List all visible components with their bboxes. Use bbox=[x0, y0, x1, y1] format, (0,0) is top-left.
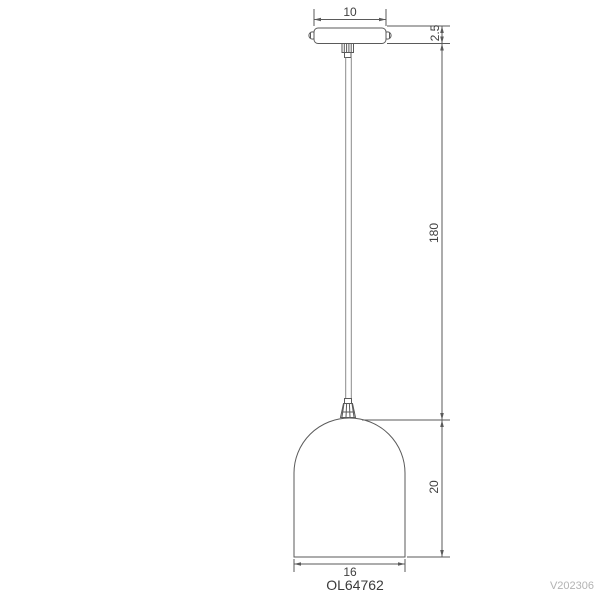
dim-drop-length-label: 180 bbox=[428, 223, 440, 243]
lamp-shade bbox=[294, 418, 405, 557]
drawing-linework bbox=[0, 0, 600, 600]
canopy-plate bbox=[314, 28, 386, 44]
technical-drawing-canvas: 10 2.5 180 20 16 OL64762 V202306 bbox=[0, 0, 600, 600]
dim-canopy-thickness-label: 2.5 bbox=[429, 25, 441, 42]
dim-canopy-width-label: 10 bbox=[343, 6, 356, 18]
version-watermark: V202306 bbox=[550, 581, 594, 592]
cord-grip-top bbox=[342, 44, 354, 58]
dim-shade-height-label: 20 bbox=[428, 480, 440, 493]
pendant-cord bbox=[346, 58, 352, 402]
ceiling-canopy bbox=[309, 28, 391, 44]
product-code-label: OL64762 bbox=[326, 578, 384, 592]
cord-grip-bottom bbox=[341, 399, 356, 418]
